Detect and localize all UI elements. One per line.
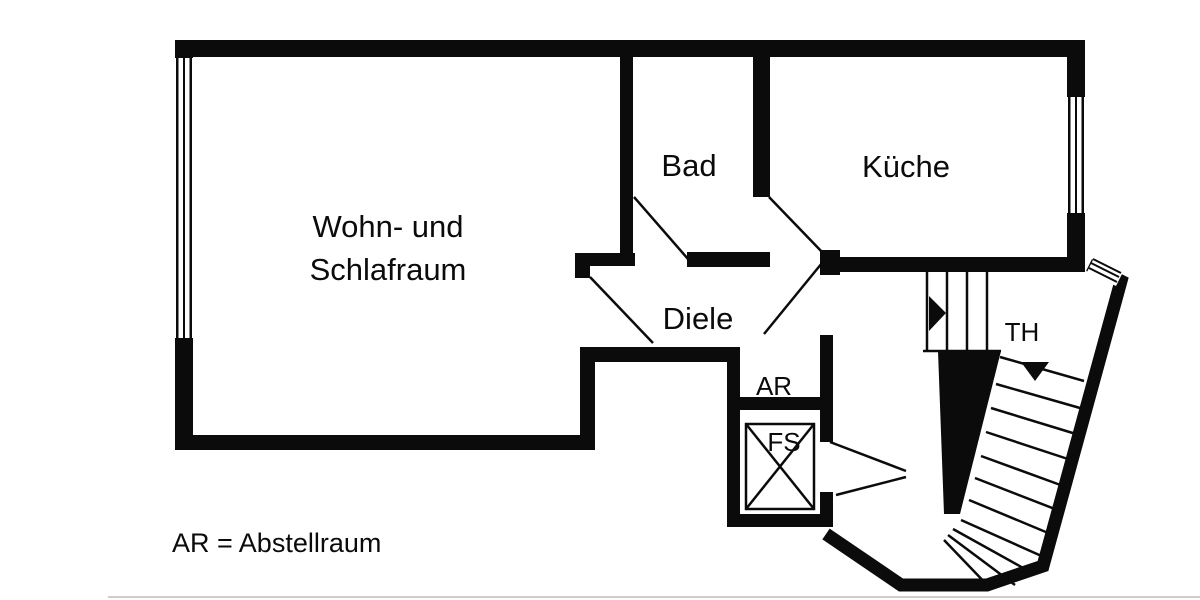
- window-kitchen: [1067, 97, 1085, 213]
- stair-core: [938, 351, 1001, 514]
- room-label-kitchen: Küche: [862, 149, 950, 184]
- floor-plan-page: Wohn- und Schlafraum Bad Küche Diele AR …: [0, 0, 1200, 600]
- label-storage: AR: [756, 371, 792, 401]
- door-living-room: [590, 277, 653, 343]
- room-label-living-line1: Wohn- und: [312, 209, 463, 244]
- stair-direction-arrow: [929, 296, 946, 331]
- interior-walls: [575, 55, 1085, 527]
- room-label-living-line2: Schlafraum: [310, 252, 467, 287]
- door-kitchen: [769, 197, 823, 253]
- door-elevator-lower: [836, 477, 906, 495]
- window-left: [175, 58, 193, 338]
- stair-down-arrow: [1021, 362, 1049, 381]
- room-label-bath: Bad: [661, 148, 716, 183]
- bottom-border-line: [108, 596, 1200, 598]
- window-stairwell: [1087, 258, 1123, 286]
- legend-row: AR = Abstellraum: [172, 525, 396, 561]
- room-label-hall: Diele: [663, 301, 734, 336]
- label-elevator: FS: [767, 427, 800, 457]
- door-bath: [634, 197, 688, 259]
- legend: AR = Abstellraum TH = Treppenhaus FS = F…: [172, 463, 396, 600]
- door-elevator-upper: [830, 442, 906, 471]
- label-stairwell: TH: [1005, 317, 1040, 347]
- door-entry: [764, 263, 822, 334]
